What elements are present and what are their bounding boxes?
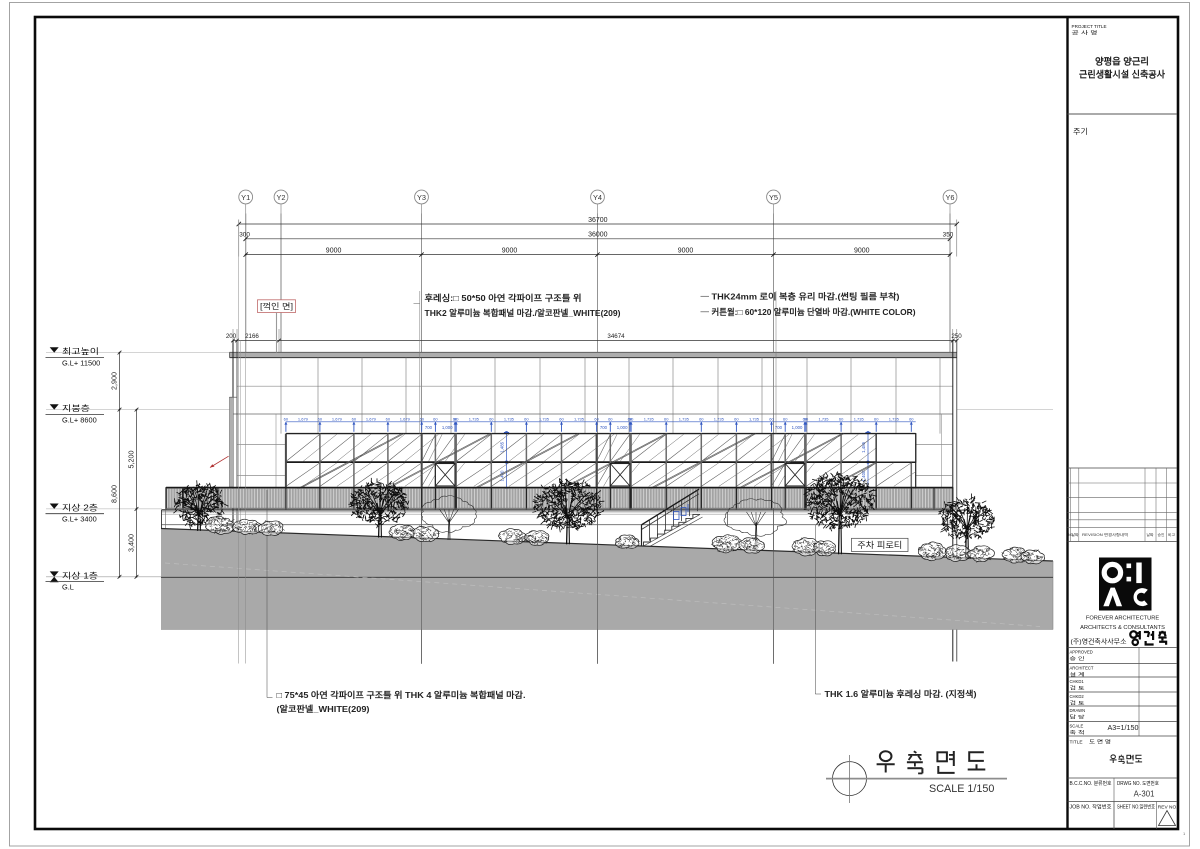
svg-text:1,735: 1,735 <box>539 417 550 422</box>
svg-text:지상 1층: 지상 1층 <box>62 570 98 580</box>
svg-text:9000: 9000 <box>678 247 694 254</box>
svg-text:지붕층: 지붕층 <box>62 404 90 413</box>
svg-text:G.L+ 8600: G.L+ 8600 <box>62 415 97 424</box>
svg-text:근린생활시설 신축공사: 근린생활시설 신축공사 <box>1079 69 1166 80</box>
svg-text:9000: 9000 <box>854 247 870 254</box>
svg-text:3,400: 3,400 <box>127 534 136 552</box>
svg-text:담 당: 담 당 <box>1070 713 1086 720</box>
svg-text:1,679: 1,679 <box>332 417 343 422</box>
svg-text:250: 250 <box>951 333 962 340</box>
svg-text:REV NO.: REV NO. <box>1158 804 1178 810</box>
svg-text:1,735: 1,735 <box>889 417 900 422</box>
svg-text:검 토: 검 토 <box>1070 699 1086 706</box>
svg-text:1,735: 1,735 <box>714 417 725 422</box>
svg-text:60: 60 <box>874 417 879 422</box>
svg-text:34674: 34674 <box>607 333 625 340</box>
svg-text:도 면 명: 도 면 명 <box>1089 738 1111 746</box>
svg-text:2,900: 2,900 <box>110 372 119 390</box>
svg-text:1,735: 1,735 <box>679 417 690 422</box>
svg-text:60: 60 <box>608 417 613 422</box>
svg-text:350: 350 <box>943 232 954 239</box>
svg-text:300: 300 <box>239 232 250 239</box>
svg-text:1,679: 1,679 <box>400 417 411 422</box>
svg-text:승인: 승인 <box>1158 532 1165 537</box>
svg-text:CHKD1: CHKD1 <box>1070 679 1085 684</box>
svg-text:60: 60 <box>734 417 739 422</box>
svg-text:공 사 명: 공 사 명 <box>1072 30 1098 37</box>
svg-text:Y3: Y3 <box>417 193 426 202</box>
svg-text:60: 60 <box>559 417 564 422</box>
svg-text:60: 60 <box>489 417 494 422</box>
svg-text:60: 60 <box>699 417 704 422</box>
svg-text:60: 60 <box>594 417 599 422</box>
svg-text:A-301: A-301 <box>1134 790 1155 799</box>
svg-text:1,679: 1,679 <box>366 417 377 422</box>
svg-text:B.C.C.NO. 분류번호: B.C.C.NO. 분류번호 <box>1070 780 1112 787</box>
svg-text:승 인: 승 인 <box>1070 655 1085 662</box>
svg-text:Y5: Y5 <box>769 193 778 202</box>
svg-text:축 척: 축 척 <box>1070 729 1085 736</box>
svg-text:THK2 알루미늄 복합패널 마감./알코판넬_WHITE(: THK2 알루미늄 복합패널 마감./알코판넬_WHITE(209) <box>425 308 621 318</box>
svg-text:1,679: 1,679 <box>298 417 309 422</box>
svg-text:A3=1/150: A3=1/150 <box>1108 723 1139 732</box>
svg-text:[꺽인 면]: [꺽인 면] <box>260 301 293 311</box>
svg-text:THK 1.6 알루미늄 후레싱 마감. (지정색): THK 1.6 알루미늄 후레싱 마감. (지정색) <box>825 689 977 699</box>
svg-text:1,485: 1,485 <box>861 441 866 453</box>
svg-text:9000: 9000 <box>326 247 342 254</box>
svg-text:Y6: Y6 <box>945 193 954 202</box>
svg-text:60: 60 <box>664 417 669 422</box>
svg-text:60: 60 <box>433 417 438 422</box>
svg-text:검 토: 검 토 <box>1070 684 1086 691</box>
svg-text:60: 60 <box>628 417 633 422</box>
svg-text:ARCHITECTS & CONSULTANTS: ARCHITECTS & CONSULTANTS <box>1080 625 1165 631</box>
svg-text:60: 60 <box>352 417 357 422</box>
svg-text:200: 200 <box>226 333 237 340</box>
svg-text:주기: 주기 <box>1073 127 1088 136</box>
svg-text:□ 75*45 아연 각파이프 구조틀 위 THK 4 알루: □ 75*45 아연 각파이프 구조틀 위 THK 4 알루미늄 복합패널 마감… <box>277 690 526 700</box>
svg-text:9000: 9000 <box>502 247 518 254</box>
svg-text:60: 60 <box>318 417 323 422</box>
svg-text:CHKD2: CHKD2 <box>1070 694 1085 699</box>
svg-text:36700: 36700 <box>588 217 608 224</box>
svg-text:8,600: 8,600 <box>110 485 119 503</box>
svg-text:APPROVED: APPROVED <box>1070 650 1093 655</box>
svg-text:REVISION 변경사항내역: REVISION 변경사항내역 <box>1082 532 1128 537</box>
svg-text:60: 60 <box>386 417 391 422</box>
svg-text:Y1: Y1 <box>241 193 250 202</box>
svg-text:설 계: 설 계 <box>1070 671 1085 678</box>
svg-text:날짜: 날짜 <box>1072 532 1080 537</box>
svg-text:DRWG NO. 도면번호: DRWG NO. 도면번호 <box>1117 780 1159 787</box>
svg-text:Y2: Y2 <box>276 193 285 202</box>
svg-text:TITLE: TITLE <box>1070 740 1083 746</box>
svg-text:60: 60 <box>769 417 774 422</box>
svg-text:JOB NO. 작업번호: JOB NO. 작업번호 <box>1070 803 1112 810</box>
svg-text:커튼월:□ 60*120 알루미늄 단열바 마감.(WHIT: 커튼월:□ 60*120 알루미늄 단열바 마감.(WHITE COLOR) <box>712 307 916 317</box>
svg-text:G.L: G.L <box>62 583 74 592</box>
svg-text:60: 60 <box>783 417 788 422</box>
svg-text:700: 700 <box>425 425 433 430</box>
svg-text:G.L+ 11500: G.L+ 11500 <box>62 358 100 367</box>
svg-text:THK24mm 로이 복층 유리 마감.(썬팅 필름 부착): THK24mm 로이 복층 유리 마감.(썬팅 필름 부착) <box>712 291 900 301</box>
svg-text:ARCHITECT: ARCHITECT <box>1070 666 1094 671</box>
svg-text:FOREVER ARCHITECTURE: FOREVER ARCHITECTURE <box>1086 616 1160 622</box>
svg-text:DRAWN: DRAWN <box>1070 708 1086 713</box>
svg-text:5,200: 5,200 <box>127 451 136 469</box>
svg-text:1,735: 1,735 <box>818 417 829 422</box>
svg-text:60: 60 <box>419 417 424 422</box>
svg-text:SHEET NO.일련번호: SHEET NO.일련번호 <box>1117 803 1155 810</box>
svg-text:(주)영건축사사무소: (주)영건축사사무소 <box>1071 636 1127 645</box>
svg-text:1,000: 1,000 <box>792 425 803 430</box>
svg-text:최고높이: 최고높이 <box>62 346 99 356</box>
svg-text:주차 피로티: 주차 피로티 <box>857 540 902 550</box>
svg-text:1,735: 1,735 <box>749 417 760 422</box>
svg-text:후레싱:□ 50*50 아연 각파이프 구조틀 위: 후레싱:□ 50*50 아연 각파이프 구조틀 위 <box>425 293 582 303</box>
svg-text:1,735: 1,735 <box>574 417 585 422</box>
svg-text:G.L+ 3400: G.L+ 3400 <box>62 515 97 524</box>
svg-text:1,735: 1,735 <box>854 417 865 422</box>
svg-text:1,735: 1,735 <box>504 417 515 422</box>
svg-text:비고: 비고 <box>1168 532 1175 537</box>
svg-text:SCALE 1/150: SCALE 1/150 <box>929 783 994 795</box>
svg-text:양평읍 양근리: 양평읍 양근리 <box>1095 56 1149 67</box>
svg-text:2166: 2166 <box>245 333 259 340</box>
svg-text:SCALE: SCALE <box>1070 724 1084 729</box>
svg-text:1,000: 1,000 <box>442 425 453 430</box>
svg-text:1,000: 1,000 <box>617 425 628 430</box>
svg-text:60: 60 <box>453 417 458 422</box>
svg-text:60: 60 <box>803 417 808 422</box>
svg-text:36000: 36000 <box>588 232 608 239</box>
svg-text:1,735: 1,735 <box>644 417 655 422</box>
svg-text:지상 2층: 지상 2층 <box>62 503 98 513</box>
svg-text:(알코판넬_WHITE(209): (알코판넬_WHITE(209) <box>277 704 370 714</box>
svg-text:60: 60 <box>524 417 529 422</box>
svg-text:Y4: Y4 <box>593 193 602 202</box>
svg-text:60: 60 <box>284 417 289 422</box>
svg-text:1,485: 1,485 <box>500 441 505 453</box>
svg-text:1,735: 1,735 <box>469 417 480 422</box>
svg-text:60: 60 <box>909 417 914 422</box>
svg-text:60: 60 <box>839 417 844 422</box>
svg-text:PROJECT TITLE: PROJECT TITLE <box>1072 24 1107 29</box>
svg-text:날짜: 날짜 <box>1147 532 1154 537</box>
svg-text:700: 700 <box>600 425 608 430</box>
